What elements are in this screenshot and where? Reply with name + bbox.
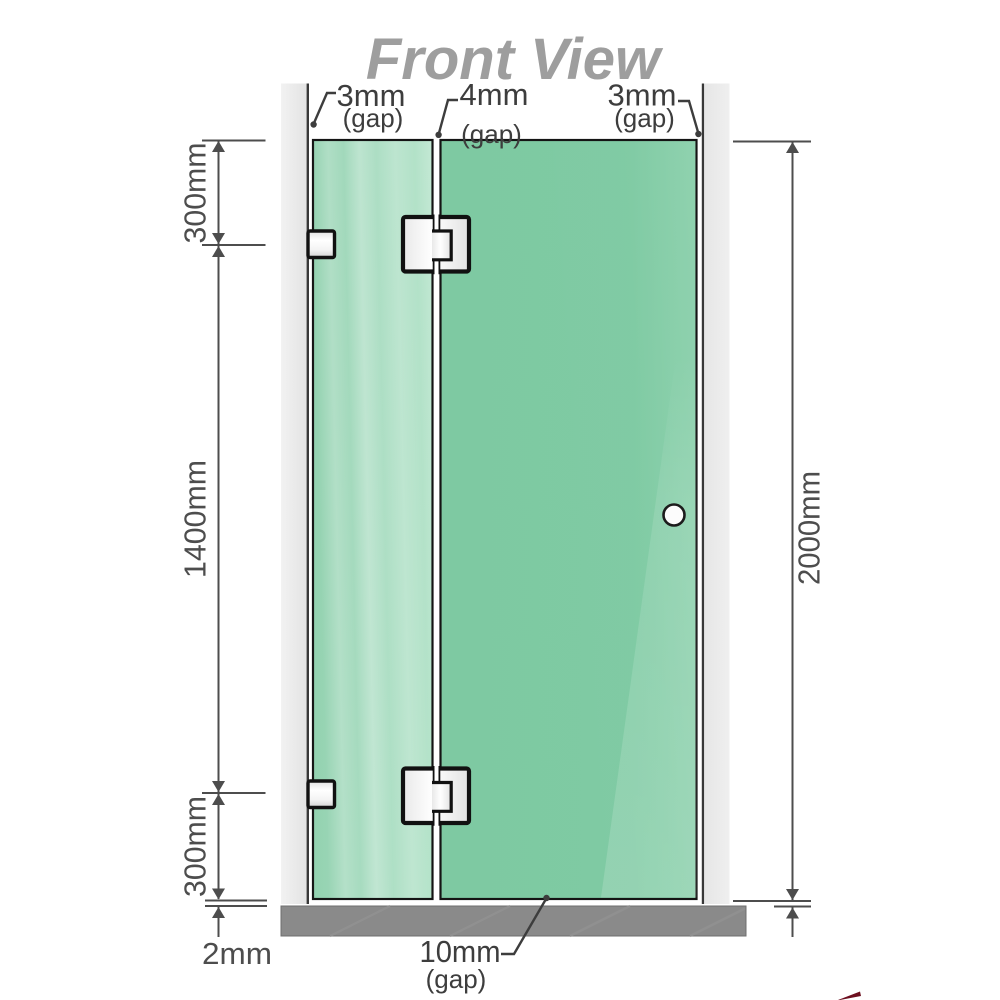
svg-text:2mm: 2mm — [202, 936, 272, 971]
svg-text:(gap): (gap) — [461, 119, 522, 149]
svg-text:(gap): (gap) — [426, 964, 487, 994]
svg-text:300mm: 300mm — [178, 143, 213, 244]
svg-text:4mm: 4mm — [460, 77, 529, 112]
svg-text:(gap): (gap) — [343, 103, 404, 133]
svg-text:300mm: 300mm — [178, 796, 213, 897]
svg-text:2000mm: 2000mm — [792, 471, 827, 585]
svg-text:(gap): (gap) — [614, 103, 675, 133]
svg-text:1400mm: 1400mm — [178, 460, 213, 578]
